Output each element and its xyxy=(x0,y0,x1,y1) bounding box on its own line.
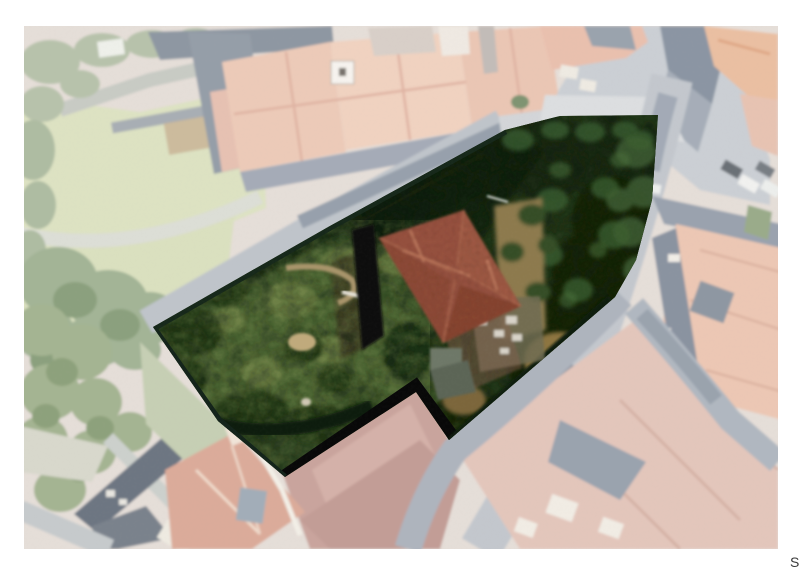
svg-text:S: S xyxy=(790,554,799,567)
